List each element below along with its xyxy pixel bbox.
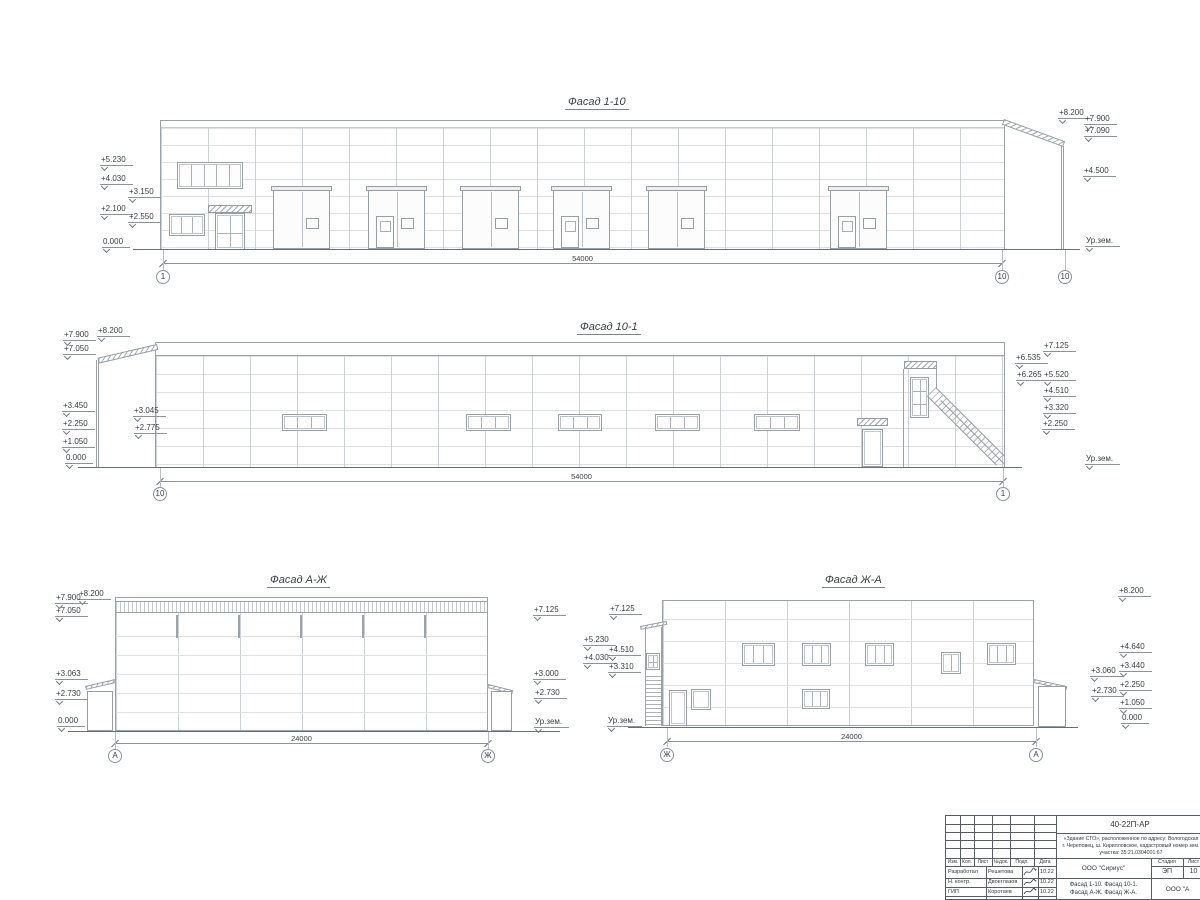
window	[691, 689, 711, 710]
drawing-sheet: Фасад 1-10 54000 1 10 10 +5.230 +4.030 +…	[0, 0, 1200, 900]
axis-bubble: 1	[156, 270, 170, 284]
col-ndok: №док.	[992, 859, 1010, 865]
facade-a-j-title: Фасад А-Ж	[267, 574, 330, 588]
axis-leader	[163, 250, 164, 270]
column-stub	[424, 615, 426, 638]
axis-bubble: 10	[1058, 270, 1072, 284]
elevation-mark: +4.030	[100, 174, 133, 185]
axis-leader	[667, 728, 668, 747]
window	[466, 414, 511, 431]
row-date: 10.22	[1040, 889, 1054, 895]
col-data: Дата	[1034, 859, 1056, 865]
sheet-subject-line2: Фасад А-Ж. Фасад Ж-А.	[1056, 890, 1151, 896]
ground-line	[133, 249, 1080, 250]
entrance-door	[215, 213, 245, 250]
ladder-rungs	[646, 676, 661, 725]
column-stub	[176, 615, 178, 638]
elevation-mark: Ур.зем.	[607, 716, 642, 727]
project-desc-line2: г. Череповец, ш. Кирилловское, кадастров…	[1058, 843, 1200, 849]
elevation-mark: 0.000	[1121, 713, 1149, 724]
window	[987, 643, 1016, 665]
elevation-mark: +2.730	[55, 689, 88, 700]
leanto-body	[87, 691, 113, 731]
facade-j-a-building	[662, 600, 1034, 726]
elevation-mark: +3.450	[62, 401, 95, 412]
axis-bubble: А	[108, 749, 122, 763]
side-canopy-roof	[1002, 119, 1065, 147]
elevation-mark: +7.050	[63, 344, 96, 355]
row-role: ГИП	[948, 889, 959, 895]
elevation-mark: 0.000	[57, 716, 85, 727]
elevation-mark: +2.250	[1119, 680, 1152, 691]
axis-bubble: А	[1029, 748, 1043, 762]
axis-bubble: 1	[996, 487, 1010, 501]
column-stub	[300, 615, 302, 638]
panel-grid-h	[663, 619, 1033, 725]
window	[558, 414, 602, 431]
side-canopy-post	[1061, 146, 1064, 250]
leanto-body	[491, 691, 512, 731]
sheet-subject-line1: Фасад 1-10. Фасад 10-1.	[1056, 882, 1151, 888]
signature	[1023, 878, 1037, 887]
window	[742, 643, 775, 666]
elevation-mark: +4.500	[1083, 166, 1116, 177]
door	[669, 690, 687, 726]
elevation-mark: +7.900	[1084, 114, 1117, 125]
elevation-mark: +2.250	[1042, 419, 1075, 430]
back-door	[862, 429, 883, 467]
elevation-mark: Ур.зем.	[534, 717, 569, 728]
dimension-line: 54000	[160, 481, 1003, 482]
elevation-mark: +4.640	[1119, 642, 1152, 653]
window	[802, 643, 831, 666]
elevation-mark: Ур.зем.	[1085, 454, 1120, 465]
elevation-mark: +8.200	[97, 326, 130, 337]
gate	[553, 186, 610, 249]
elevation-mark: 0.000	[65, 453, 93, 464]
ribbon-window	[177, 162, 243, 189]
project-desc-line1: «Здание СТО», расположенное по адресу: В…	[1058, 836, 1200, 842]
roof-fascia-band	[116, 601, 487, 613]
axis-bubble: 10	[995, 270, 1009, 284]
axis-leader	[115, 732, 116, 749]
elevation-mark: +2.775	[134, 423, 167, 434]
axis-leader	[1065, 250, 1066, 270]
ground-line	[628, 727, 1078, 728]
elevation-mark: +8.200	[1118, 586, 1151, 597]
axis-leader	[160, 468, 161, 487]
elevation-mark: +3.440	[1119, 661, 1152, 672]
elevation-mark: +3.310	[608, 662, 641, 673]
elevation-mark: +1.050	[62, 437, 95, 448]
elevation-mark: +2.730	[534, 688, 567, 699]
design-org: ООО "Сириус"	[1056, 865, 1151, 872]
row-date: 10.22	[1040, 869, 1054, 875]
row-date: 10.22	[1040, 879, 1054, 885]
axis-bubble: Ж	[660, 748, 674, 762]
entrance-canopy	[208, 205, 252, 213]
side-canopy-roof	[98, 344, 159, 364]
stage-label: Стадия	[1151, 859, 1183, 865]
axis-bubble: Ж	[481, 749, 495, 763]
elevation-mark: 0.000	[102, 237, 130, 248]
elevation-mark: Ур.зем.	[1085, 236, 1120, 247]
stair-tower-line	[903, 369, 904, 467]
gate	[648, 186, 705, 249]
col-izm: Изм.	[946, 859, 960, 865]
leanto-roof	[85, 679, 116, 690]
signature	[1023, 867, 1037, 877]
window	[802, 689, 830, 709]
elevation-mark: +7.125	[609, 604, 642, 615]
ground-line	[78, 467, 1022, 468]
elevation-mark: +3.000	[533, 669, 566, 680]
panel-grid-h	[116, 636, 487, 730]
column-stub	[238, 615, 240, 638]
doc-number: 40-22П-АР	[1056, 820, 1200, 829]
elevation-mark: +7.900	[63, 330, 96, 341]
axis-leader	[488, 732, 489, 749]
col-kol: Кол.	[960, 859, 974, 865]
elevation-mark: +4.510	[1043, 386, 1076, 397]
elevation-mark: +3.060	[1090, 666, 1123, 677]
gate	[273, 186, 330, 249]
elevation-mark: +7.125	[1043, 341, 1076, 352]
elevation-mark: +3.150	[128, 187, 161, 198]
title-block: Изм. Кол. Лист №док. Подп. Дата Разработ…	[945, 815, 1200, 900]
gate	[368, 186, 425, 249]
ladder-window	[646, 653, 660, 670]
facade-j-a-title: Фасад Ж-А	[822, 574, 885, 588]
row-name: Двоеглазов	[988, 879, 1017, 885]
sheet-label: Лист	[1183, 859, 1200, 865]
window	[169, 214, 205, 236]
door-canopy	[857, 418, 888, 426]
elevation-mark: +1.050	[1119, 698, 1152, 709]
elevation-mark: +3.045	[133, 406, 166, 417]
stair-tower-line	[936, 369, 937, 389]
window	[754, 414, 800, 431]
row-name: Решетова	[988, 869, 1013, 875]
elevation-mark: +5.230	[100, 155, 133, 166]
elevation-mark: +6.535	[1015, 353, 1048, 364]
row-role: Разработал	[948, 869, 978, 875]
side-canopy-post	[96, 360, 99, 467]
window	[865, 643, 894, 666]
stage-value: ЭП	[1151, 868, 1183, 875]
org2: ООО "А	[1151, 886, 1200, 893]
facade-1-10-title: Фасад 1-10	[565, 96, 629, 110]
sheet-number: 10	[1183, 868, 1200, 875]
elevation-mark: +7.090	[1084, 126, 1117, 137]
window	[941, 652, 961, 674]
elevation-mark: +3.063	[55, 669, 88, 680]
col-podp: Подп.	[1010, 859, 1034, 865]
col-list: Лист	[974, 859, 992, 865]
gate	[462, 186, 519, 249]
gate	[830, 186, 887, 249]
axis-leader	[1003, 468, 1004, 487]
stair-canopy	[904, 361, 937, 369]
dimension-line: 54000	[163, 263, 1002, 264]
parapet-band	[156, 343, 1004, 356]
elevation-mark: +3.320	[1043, 403, 1076, 414]
stair-landing-window	[910, 377, 929, 418]
project-desc-line3: участка: 35:21.0304001:67	[1058, 850, 1200, 856]
elevation-mark: +7.050	[55, 606, 88, 617]
dimension-line: 24000	[667, 741, 1036, 742]
dimension-line: 24000	[115, 743, 488, 744]
elevation-mark: +7.900	[55, 593, 88, 604]
row-role: Н. контр.	[948, 879, 971, 885]
signature	[1023, 887, 1037, 896]
elevation-mark: +5.520	[1043, 370, 1076, 381]
axis-bubble: 10	[153, 487, 167, 501]
window	[655, 414, 700, 431]
elevation-mark: +7.125	[533, 605, 566, 616]
leanto-body	[1038, 686, 1066, 727]
elevation-mark: +2.250	[62, 419, 95, 430]
column-stub	[362, 615, 364, 638]
elevation-mark: +2.550	[128, 212, 161, 223]
facade-10-1-title: Фасад 10-1	[577, 321, 641, 335]
row-name: Коротаев	[988, 889, 1012, 895]
ground-line	[68, 731, 560, 732]
axis-leader	[1002, 250, 1003, 270]
window	[282, 414, 327, 431]
axis-leader	[1036, 728, 1037, 747]
